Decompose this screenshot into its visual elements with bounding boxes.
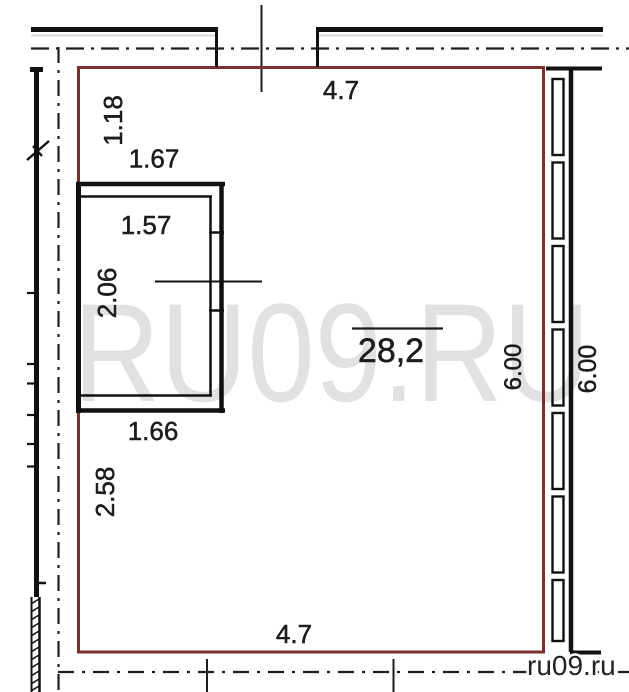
svg-text:4.7: 4.7	[276, 619, 312, 649]
svg-text:1.18: 1.18	[98, 95, 128, 146]
svg-text:2.06: 2.06	[92, 268, 122, 319]
svg-text:2.58: 2.58	[90, 467, 120, 518]
svg-text:6.00: 6.00	[574, 345, 602, 394]
svg-text:6.00: 6.00	[500, 344, 527, 391]
svg-text:ru09.ru: ru09.ru	[527, 650, 616, 681]
svg-text:1.57: 1.57	[121, 210, 172, 240]
svg-text:1.67: 1.67	[129, 144, 180, 174]
svg-text:4.7: 4.7	[323, 75, 359, 105]
svg-text:28,2: 28,2	[358, 332, 424, 370]
svg-text:1.66: 1.66	[128, 416, 179, 446]
